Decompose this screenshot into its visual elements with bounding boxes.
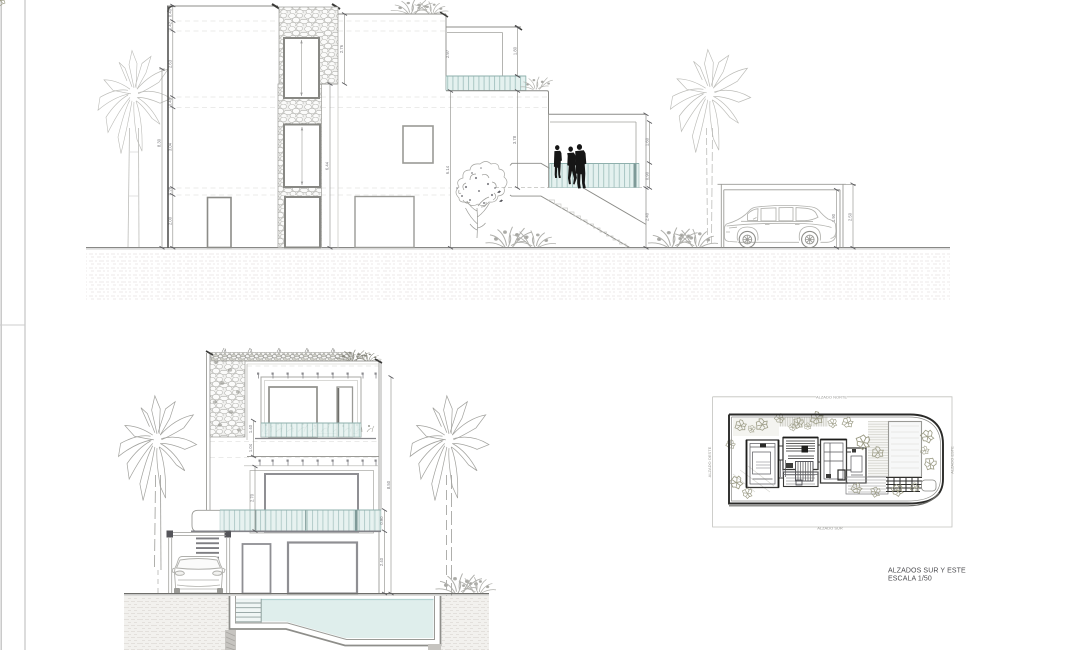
svg-text:ALZADO OESTE: ALZADO OESTE bbox=[707, 446, 712, 477]
svg-text:1.90: 1.90 bbox=[831, 213, 836, 222]
svg-text:0.40: 0.40 bbox=[167, 8, 172, 17]
svg-text:2.50: 2.50 bbox=[848, 212, 853, 221]
svg-text:0.90: 0.90 bbox=[644, 171, 649, 180]
svg-text:8.50: 8.50 bbox=[386, 480, 391, 489]
svg-text:1.80: 1.80 bbox=[512, 46, 517, 55]
svg-text:6.44: 6.44 bbox=[325, 161, 330, 170]
svg-text:8.30: 8.30 bbox=[157, 138, 162, 147]
svg-text:ALZADO NORTE: ALZADO NORTE bbox=[816, 394, 847, 399]
svg-text:ALZADO ESTE: ALZADO ESTE bbox=[950, 446, 955, 474]
svg-text:2.97: 2.97 bbox=[445, 49, 450, 58]
svg-text:0.28: 0.28 bbox=[167, 186, 172, 195]
svg-text:ALZADO SUR: ALZADO SUR bbox=[817, 526, 843, 531]
svg-text:0.42: 0.42 bbox=[167, 21, 172, 30]
svg-text:ESCALA 1/50: ESCALA 1/50 bbox=[888, 576, 932, 583]
svg-text:1.60: 1.60 bbox=[644, 137, 649, 146]
svg-text:0.42: 0.42 bbox=[167, 97, 172, 106]
svg-text:3.78: 3.78 bbox=[512, 135, 517, 144]
svg-text:2.76: 2.76 bbox=[339, 44, 344, 53]
svg-text:2.40: 2.40 bbox=[379, 557, 384, 566]
svg-text:6.14: 6.14 bbox=[445, 165, 450, 174]
svg-text:3.04: 3.04 bbox=[167, 142, 172, 151]
svg-text:1.04: 1.04 bbox=[248, 443, 253, 452]
svg-text:ALZADOS SUR Y ESTE: ALZADOS SUR Y ESTE bbox=[888, 568, 966, 575]
svg-text:1.40: 1.40 bbox=[248, 424, 253, 433]
svg-text:2.40: 2.40 bbox=[645, 212, 650, 221]
svg-text:0.90: 0.90 bbox=[379, 516, 384, 525]
svg-text:2.70: 2.70 bbox=[250, 493, 255, 502]
svg-text:2.00: 2.00 bbox=[167, 216, 172, 225]
svg-text:2.63: 2.63 bbox=[167, 59, 172, 68]
